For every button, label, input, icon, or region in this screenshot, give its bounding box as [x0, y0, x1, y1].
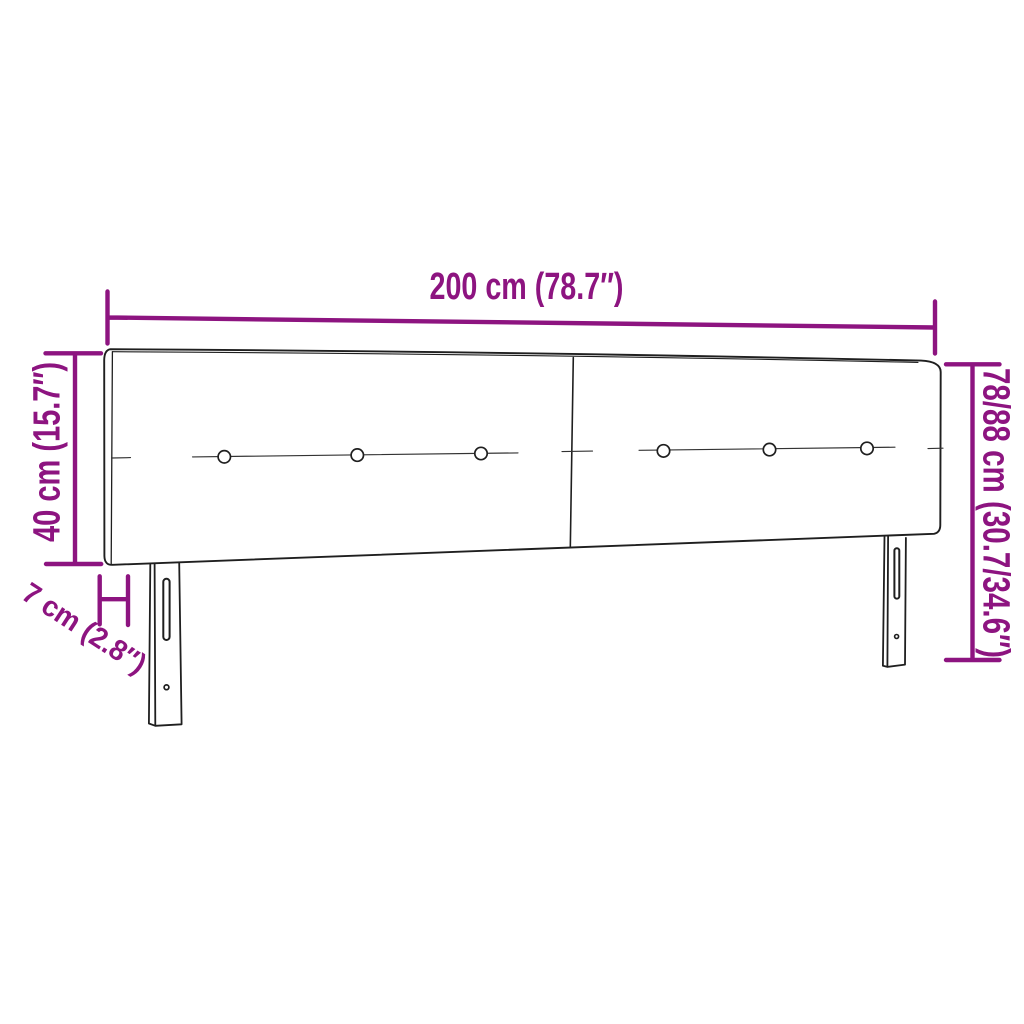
svg-text:200 cm (78.7″): 200 cm (78.7″) — [430, 266, 624, 308]
svg-text:78/88 cm (30.7/34.6″): 78/88 cm (30.7/34.6″) — [975, 368, 1017, 658]
svg-text:40 cm (15.7″): 40 cm (15.7″) — [27, 362, 69, 542]
svg-text:7 cm (2.8″): 7 cm (2.8″) — [16, 577, 152, 681]
